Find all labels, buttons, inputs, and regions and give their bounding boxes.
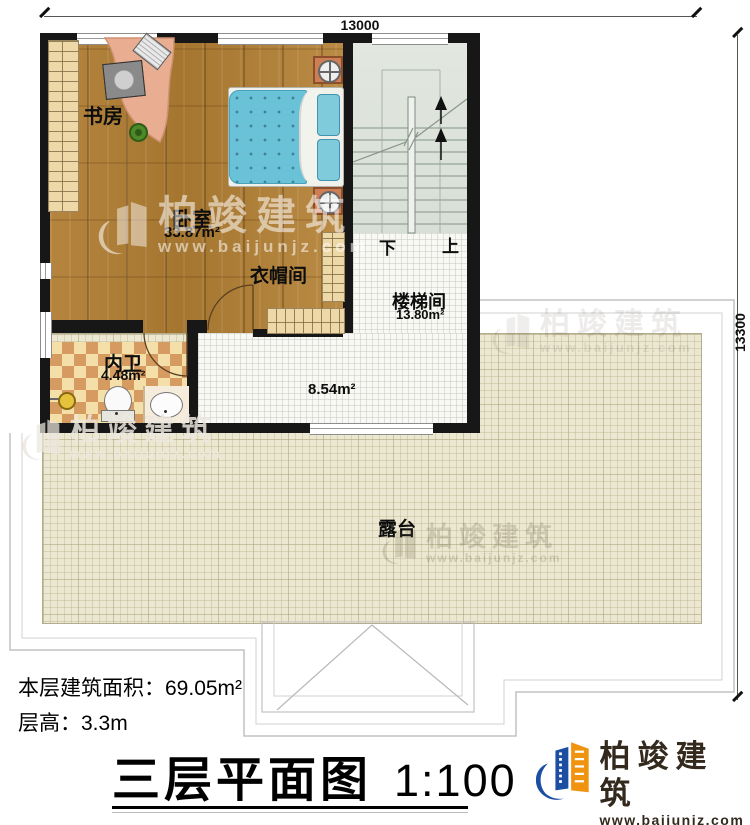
- computer-monitor: [102, 60, 146, 100]
- study-wardrobe: [48, 40, 79, 212]
- nightstand: [313, 56, 343, 84]
- stair-down-label: 下: [379, 234, 396, 259]
- area-hall: 8.54m²: [308, 381, 356, 398]
- window-left-2: [40, 312, 52, 358]
- cloakroom-closet-right: [322, 232, 345, 302]
- stair-treads: [353, 43, 467, 238]
- nightstand: [313, 187, 343, 215]
- sink: [150, 392, 183, 418]
- area-bedroom: 33.87m²: [164, 224, 220, 241]
- floor-area-text: 本层建筑面积：69.05m²: [18, 672, 242, 702]
- brand-name: 柏竣建筑: [599, 738, 750, 812]
- label-study: 书房: [83, 100, 123, 129]
- door-arcs: [140, 282, 260, 380]
- terrace-door: [310, 423, 433, 435]
- bed-blanket: [229, 90, 307, 184]
- page-title: 三层平面图1:100: [112, 740, 517, 810]
- area-stairwell: 13.80m²: [396, 307, 444, 322]
- floor-plan-canvas: 13000 13300: [0, 0, 750, 825]
- toilet-tank: [101, 410, 135, 422]
- label-cloakroom: 衣帽间: [250, 261, 307, 288]
- title-underline: [112, 806, 468, 809]
- area-bathroom: 4.48m²: [101, 367, 145, 383]
- title-underline-shadow: [112, 812, 468, 813]
- wall-bedroom-bathroom: [43, 320, 143, 333]
- pillow: [317, 139, 340, 181]
- brand-logo: 柏竣建筑 www.baijunjz.com: [536, 738, 750, 825]
- window-top-2: [218, 33, 323, 45]
- lamp-icon: [318, 191, 341, 214]
- floor-height-text: 层高：3.3m: [18, 707, 128, 737]
- toilet-button: [115, 412, 118, 415]
- title-scale: 1:100: [394, 755, 517, 806]
- plant: [129, 123, 148, 142]
- pillow: [317, 94, 340, 136]
- stair-up-label: 上: [442, 232, 459, 257]
- shower-head: [58, 392, 76, 410]
- window-left-1: [40, 263, 52, 279]
- brand-site: www.baijunjz.com: [599, 812, 750, 825]
- faucet: [164, 410, 167, 413]
- cloakroom-closet-bottom: [267, 308, 345, 334]
- title-name: 三层平面图: [112, 754, 372, 807]
- brand-logo-icon: [536, 738, 591, 802]
- wall-right: [467, 33, 480, 433]
- label-terrace: 露台: [378, 514, 416, 541]
- lamp-icon: [318, 60, 341, 83]
